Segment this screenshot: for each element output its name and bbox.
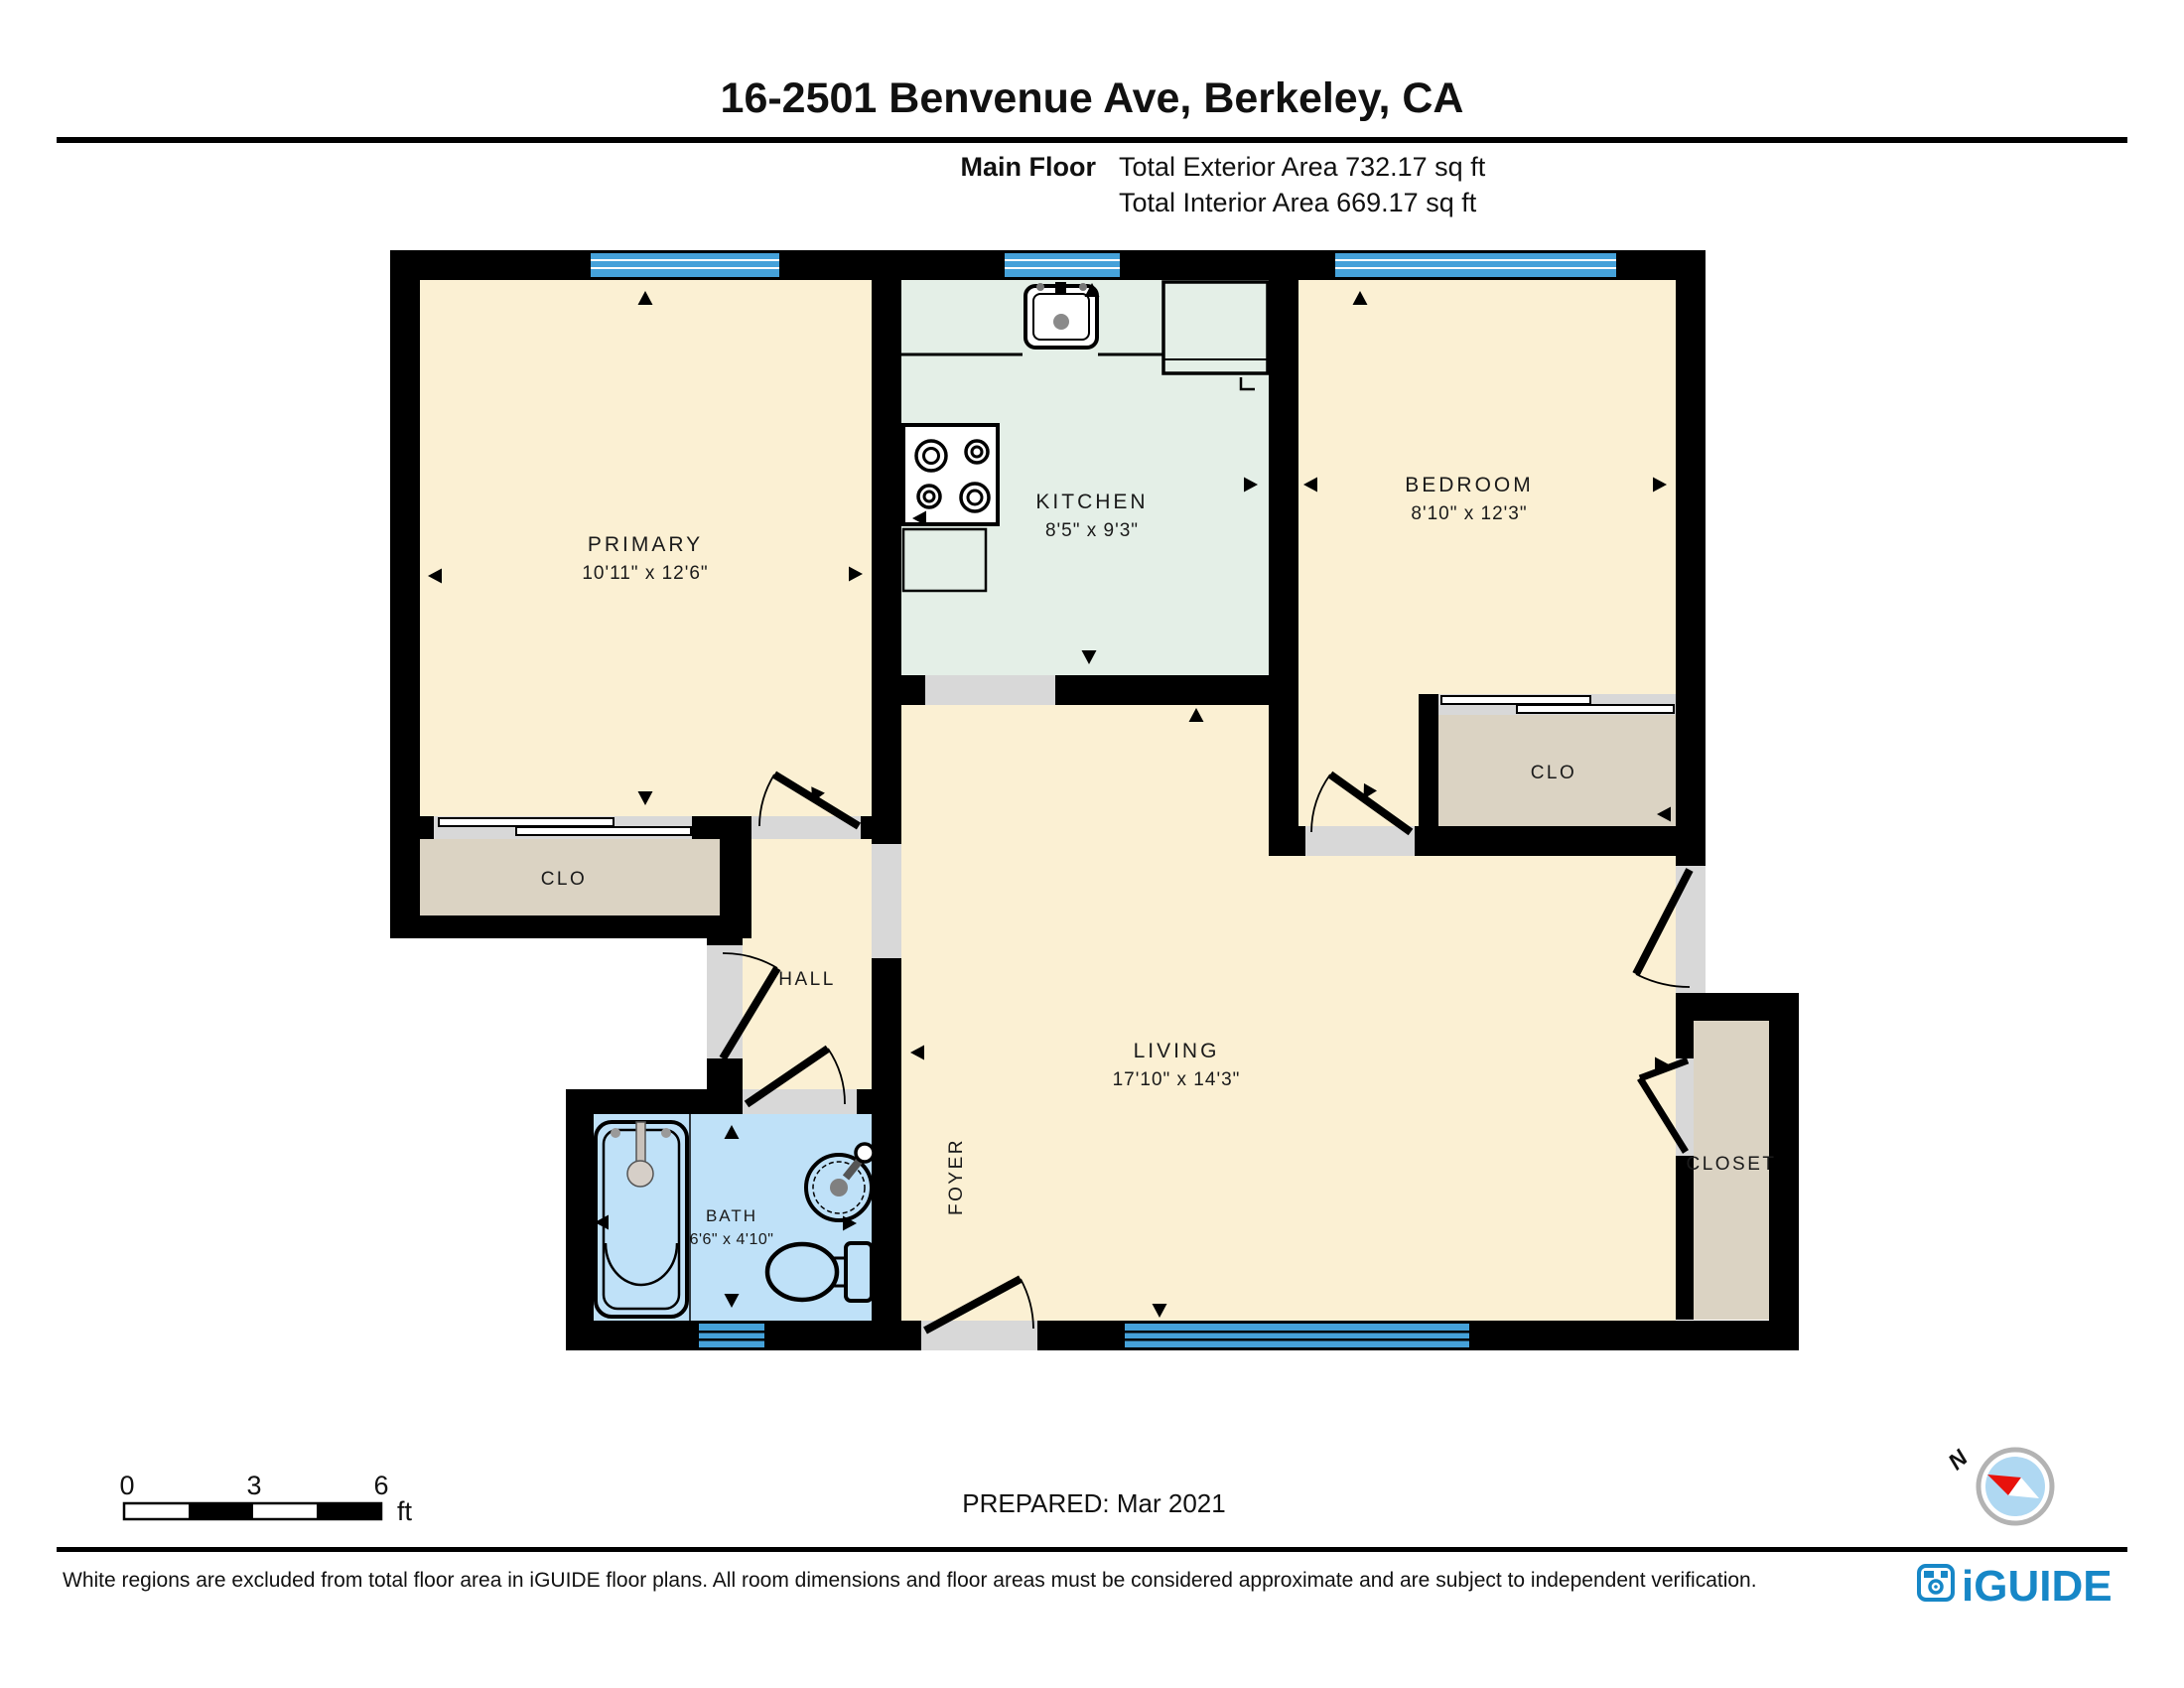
- window-bedroom: [1335, 250, 1616, 280]
- foyer-label: FOYER: [946, 1138, 967, 1215]
- scale-tick-3: 3: [246, 1471, 261, 1500]
- iguide-logo-icon: [1919, 1566, 1953, 1600]
- stove-icon: [903, 425, 998, 524]
- room-fills: [420, 280, 1769, 1323]
- wall-center-vertical: [872, 250, 901, 1350]
- kitchen-living-opening: [925, 675, 1055, 705]
- bedroom-dims: 8'10" x 12'3": [1411, 503, 1527, 524]
- kitchen-sink-icon: [1025, 282, 1097, 348]
- window-bath: [699, 1321, 764, 1350]
- scale-bar: 0 3 6 ft: [119, 1471, 412, 1526]
- floor-label: Main Floor: [961, 152, 1097, 182]
- primary-label: PRIMARY: [588, 533, 703, 556]
- primary-closet-slider: [516, 827, 691, 835]
- hall-living-opening: [872, 844, 901, 958]
- wall-bath-left: [566, 1089, 594, 1350]
- disclaimer-text: White regions are excluded from total fl…: [63, 1569, 1757, 1592]
- exterior-area-label: Total Exterior Area 732.17 sq ft: [1119, 152, 1486, 182]
- wall-closet-bottom: [390, 915, 751, 938]
- scale-tick-0: 0: [119, 1471, 134, 1500]
- footer-divider: [57, 1547, 2127, 1552]
- wall-bedroom-closet-left: [1419, 694, 1438, 826]
- bath-label: BATH: [706, 1206, 757, 1225]
- wall-stub: [420, 816, 434, 839]
- wall-kitchen-bedroom: [1269, 250, 1298, 826]
- hall-label: HALL: [778, 969, 836, 990]
- living-label: LIVING: [1134, 1040, 1220, 1062]
- page-title: 16-2501 Benvenue Ave, Berkeley, CA: [721, 74, 1464, 122]
- living-closet-label: CLOSET: [1686, 1154, 1776, 1175]
- iguide-logo-text: iGUIDE: [1962, 1562, 2113, 1611]
- compass-icon: N: [1943, 1445, 2052, 1523]
- kitchen-label: KITCHEN: [1035, 491, 1148, 513]
- kitchen-dims: 8'5" x 9'3": [1045, 520, 1139, 541]
- bedroom-label: BEDROOM: [1405, 474, 1534, 496]
- wall-bath-top: [566, 1089, 743, 1114]
- window-primary: [591, 250, 779, 280]
- prepared-label: PREPARED: Mar 2021: [962, 1488, 1225, 1518]
- floorplan-page: 16-2501 Benvenue Ave, Berkeley, CA Main …: [0, 0, 2184, 1688]
- bedroom-closet-slider: [1441, 696, 1590, 704]
- compass-north-label: N: [1943, 1445, 1973, 1476]
- header-divider: [57, 137, 2127, 143]
- scale-unit: ft: [397, 1496, 413, 1526]
- primary-closet-label: CLO: [541, 869, 588, 890]
- wall-stub: [692, 816, 751, 839]
- floorplan-canvas: 16-2501 Benvenue Ave, Berkeley, CA Main …: [0, 0, 2184, 1688]
- bath-dims: 6'6" x 4'10": [690, 1231, 774, 1248]
- primary-dims: 10'11" x 12'6": [582, 563, 708, 584]
- interior-area-label: Total Interior Area 669.17 sq ft: [1119, 188, 1477, 217]
- iguide-logo: iGUIDE: [1919, 1562, 2113, 1611]
- bedroom-door-opening: [1305, 826, 1415, 856]
- hall-fill: [743, 839, 872, 1089]
- wall-left: [390, 250, 420, 938]
- scale-tick-6: 6: [373, 1471, 388, 1500]
- toilet-icon: [767, 1243, 872, 1301]
- bedroom-closet-slider: [1517, 705, 1674, 713]
- primary-closet-slider: [439, 818, 614, 826]
- window-kitchen: [1005, 250, 1120, 280]
- bedroom-closet-label: CLO: [1531, 763, 1577, 783]
- window-living: [1125, 1321, 1469, 1350]
- living-dims: 17'10" x 14'3": [1113, 1069, 1241, 1090]
